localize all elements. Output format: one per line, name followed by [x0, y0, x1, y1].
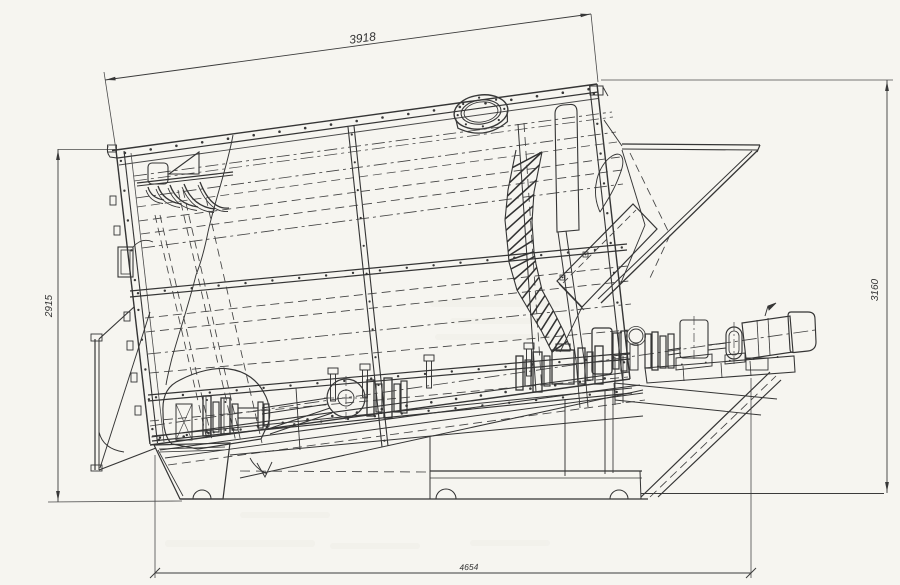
svg-text:3160: 3160	[870, 278, 881, 301]
svg-text:4654: 4654	[459, 562, 479, 573]
svg-text:2915: 2915	[44, 294, 55, 318]
